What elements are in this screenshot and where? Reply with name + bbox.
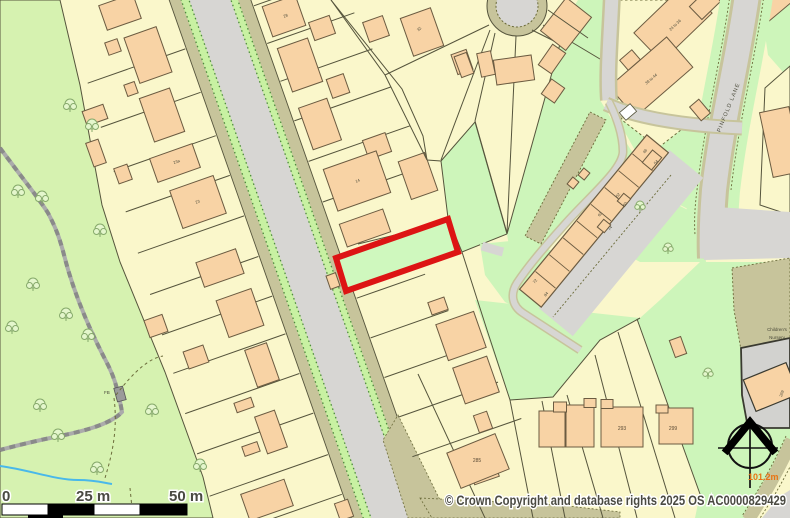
svg-text:285: 285 bbox=[473, 458, 482, 464]
svg-text:25 m: 25 m bbox=[76, 488, 110, 505]
svg-text:Nursery: Nursery bbox=[769, 335, 786, 340]
svg-text:Children's: Children's bbox=[767, 327, 788, 332]
svg-text:50 m: 50 m bbox=[169, 488, 203, 505]
svg-text:101.2m: 101.2m bbox=[748, 472, 779, 482]
svg-text:299: 299 bbox=[669, 426, 678, 432]
svg-text:293: 293 bbox=[618, 426, 627, 432]
svg-text:© Crown Copyright and database: © Crown Copyright and database rights 20… bbox=[445, 493, 786, 508]
svg-text:0: 0 bbox=[2, 488, 10, 505]
svg-text:FB: FB bbox=[104, 390, 110, 395]
